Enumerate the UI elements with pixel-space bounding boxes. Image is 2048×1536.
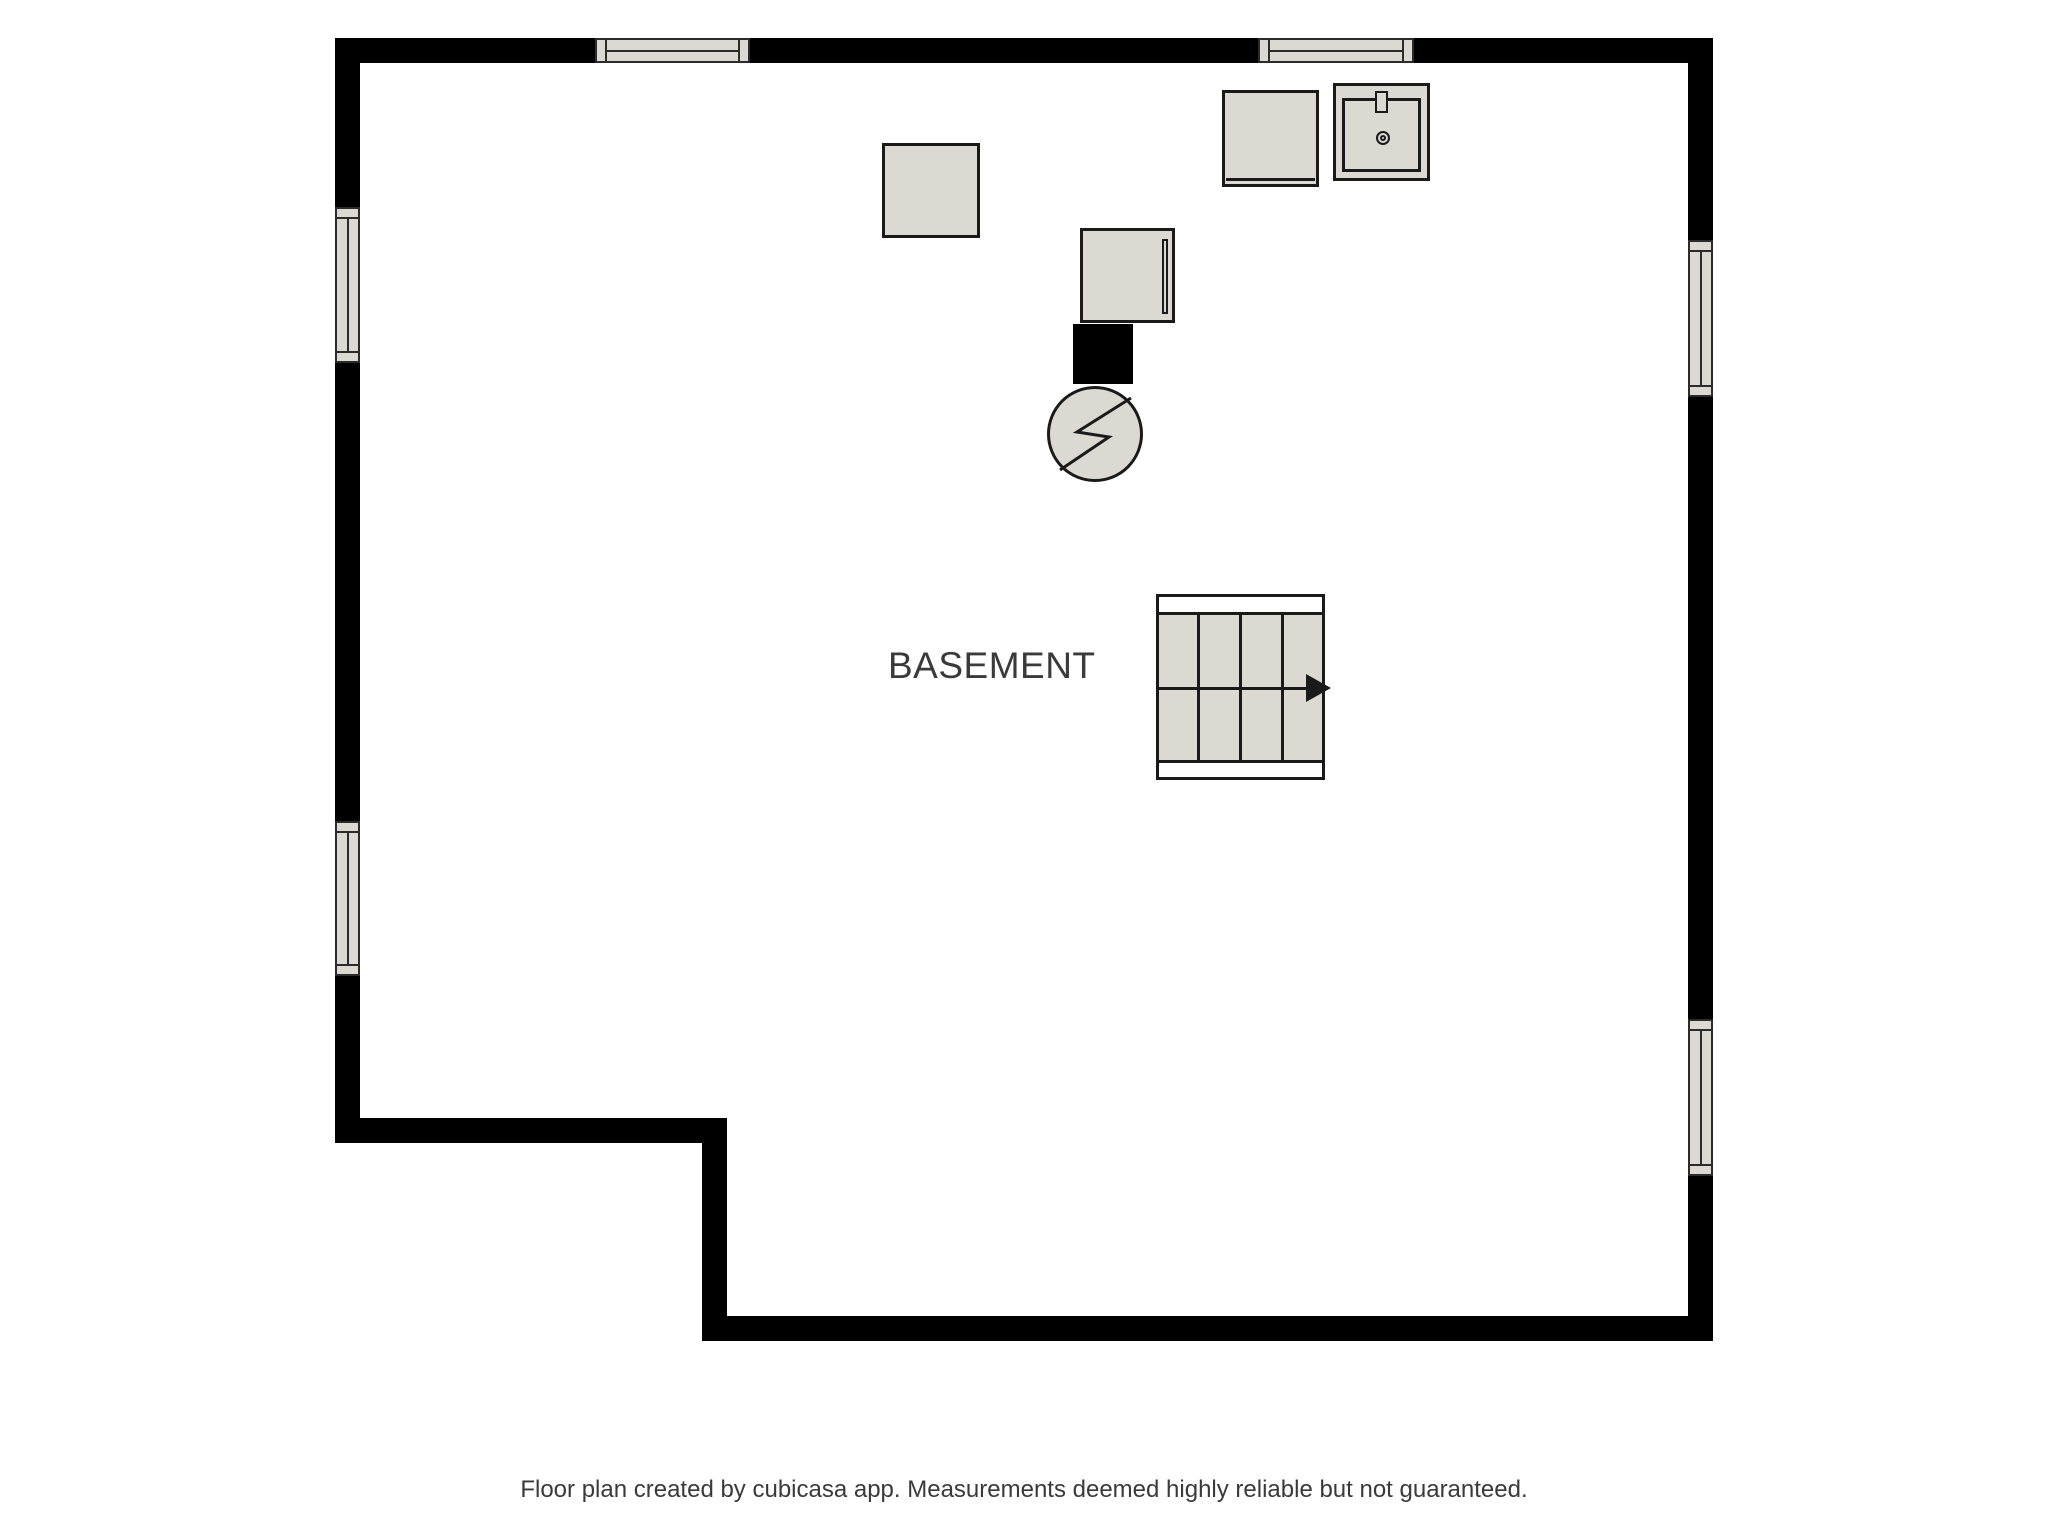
room-label: BASEMENT	[888, 647, 1096, 684]
water-heater	[1047, 386, 1143, 482]
drain-icon	[1376, 131, 1390, 145]
wall-bottom	[702, 1316, 1713, 1341]
stair-treads	[1159, 612, 1322, 763]
window-panes	[1688, 250, 1713, 387]
stair-direction-arrow-icon	[1306, 674, 1331, 702]
furnace	[1080, 228, 1175, 323]
wall-step-bottom-left	[335, 1118, 727, 1143]
window-cap	[1688, 385, 1713, 397]
floor-plan-page: BASEMENT Floor plan created by cubicasa …	[0, 0, 2048, 1536]
lightning-bolt-icon	[1050, 389, 1140, 479]
window-left-1	[335, 207, 360, 363]
window-cap	[335, 207, 360, 219]
wall-left	[335, 38, 360, 1143]
footer-caption: Floor plan created by cubicasa app. Meas…	[0, 1476, 2048, 1504]
window-cap	[1402, 38, 1414, 63]
utility-sink	[1333, 83, 1430, 181]
window-right-1	[1688, 240, 1713, 397]
window-cap	[1688, 1019, 1713, 1031]
wall-top	[335, 38, 1713, 63]
window-top-1	[595, 38, 750, 63]
drain-dot	[1380, 135, 1386, 141]
window-panes	[1688, 1029, 1713, 1166]
window-left-2	[335, 821, 360, 976]
window-cap	[335, 964, 360, 976]
window-panes	[335, 831, 360, 966]
window-right-2	[1688, 1019, 1713, 1176]
window-panes	[605, 38, 740, 63]
flue	[1073, 324, 1133, 384]
window-cap	[335, 821, 360, 833]
washer	[1222, 90, 1319, 187]
wall-step-vertical	[702, 1118, 727, 1341]
window-top-2	[1258, 38, 1414, 63]
window-cap	[1258, 38, 1270, 63]
window-cap	[738, 38, 750, 63]
furnace-panel	[1162, 239, 1168, 314]
washer-door-line	[1226, 178, 1315, 181]
window-panes	[1268, 38, 1404, 63]
staircase	[1156, 594, 1325, 780]
window-cap	[1688, 240, 1713, 252]
window-panes	[335, 217, 360, 353]
window-cap	[595, 38, 607, 63]
window-cap	[1688, 1164, 1713, 1176]
window-cap	[335, 351, 360, 363]
faucet-icon	[1375, 91, 1388, 113]
stair-mid-line	[1159, 687, 1322, 690]
storage-box	[882, 143, 980, 238]
